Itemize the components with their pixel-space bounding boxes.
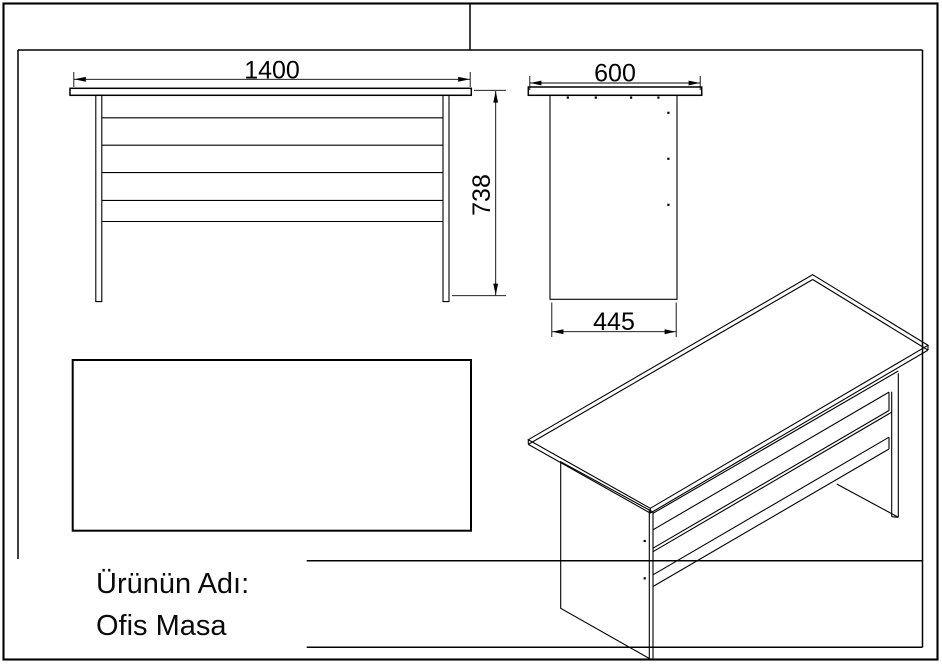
drawing-sheet: 1400 738 600 <box>0 0 942 669</box>
iso-desktop-face <box>528 275 928 509</box>
dim-front-width-label: 1400 <box>244 57 300 85</box>
side-view-panel <box>550 95 677 299</box>
product-name-block: Ürünün Adı: Ofis Masa <box>96 568 249 642</box>
front-view-right-leg <box>443 95 449 301</box>
front-view-panel-lines <box>102 118 443 222</box>
side-view-desktop <box>528 87 701 95</box>
front-view <box>70 88 471 301</box>
iso-upper-drawer-rail <box>653 371 898 548</box>
title-block <box>307 561 923 648</box>
top-view <box>73 360 471 531</box>
front-view-desktop <box>70 88 471 95</box>
dim-side-top-width-label: 600 <box>594 60 636 88</box>
top-view-rectangle <box>73 360 471 531</box>
iso-desktop-edge-band <box>528 280 928 514</box>
dimension-side-bottom-width: 445 <box>552 303 676 338</box>
dimension-side-top-width: 600 <box>530 60 700 91</box>
front-view-left-leg <box>96 95 102 301</box>
dimension-front-width: 1400 <box>74 57 470 88</box>
cad-drawing-canvas: 1400 738 600 <box>0 0 942 669</box>
product-name-label: Ürünün Adı: <box>96 568 249 600</box>
dim-side-bottom-width-label: 445 <box>593 308 635 336</box>
dimension-front-height: 738 <box>452 90 506 295</box>
side-view-fastener-dots-right <box>667 112 669 206</box>
isometric-view <box>528 275 928 660</box>
side-view <box>528 87 701 299</box>
side-view-fastener-dots-top <box>567 97 660 99</box>
dim-front-height-label: 738 <box>468 174 496 216</box>
product-name-value: Ofis Masa <box>96 610 227 642</box>
